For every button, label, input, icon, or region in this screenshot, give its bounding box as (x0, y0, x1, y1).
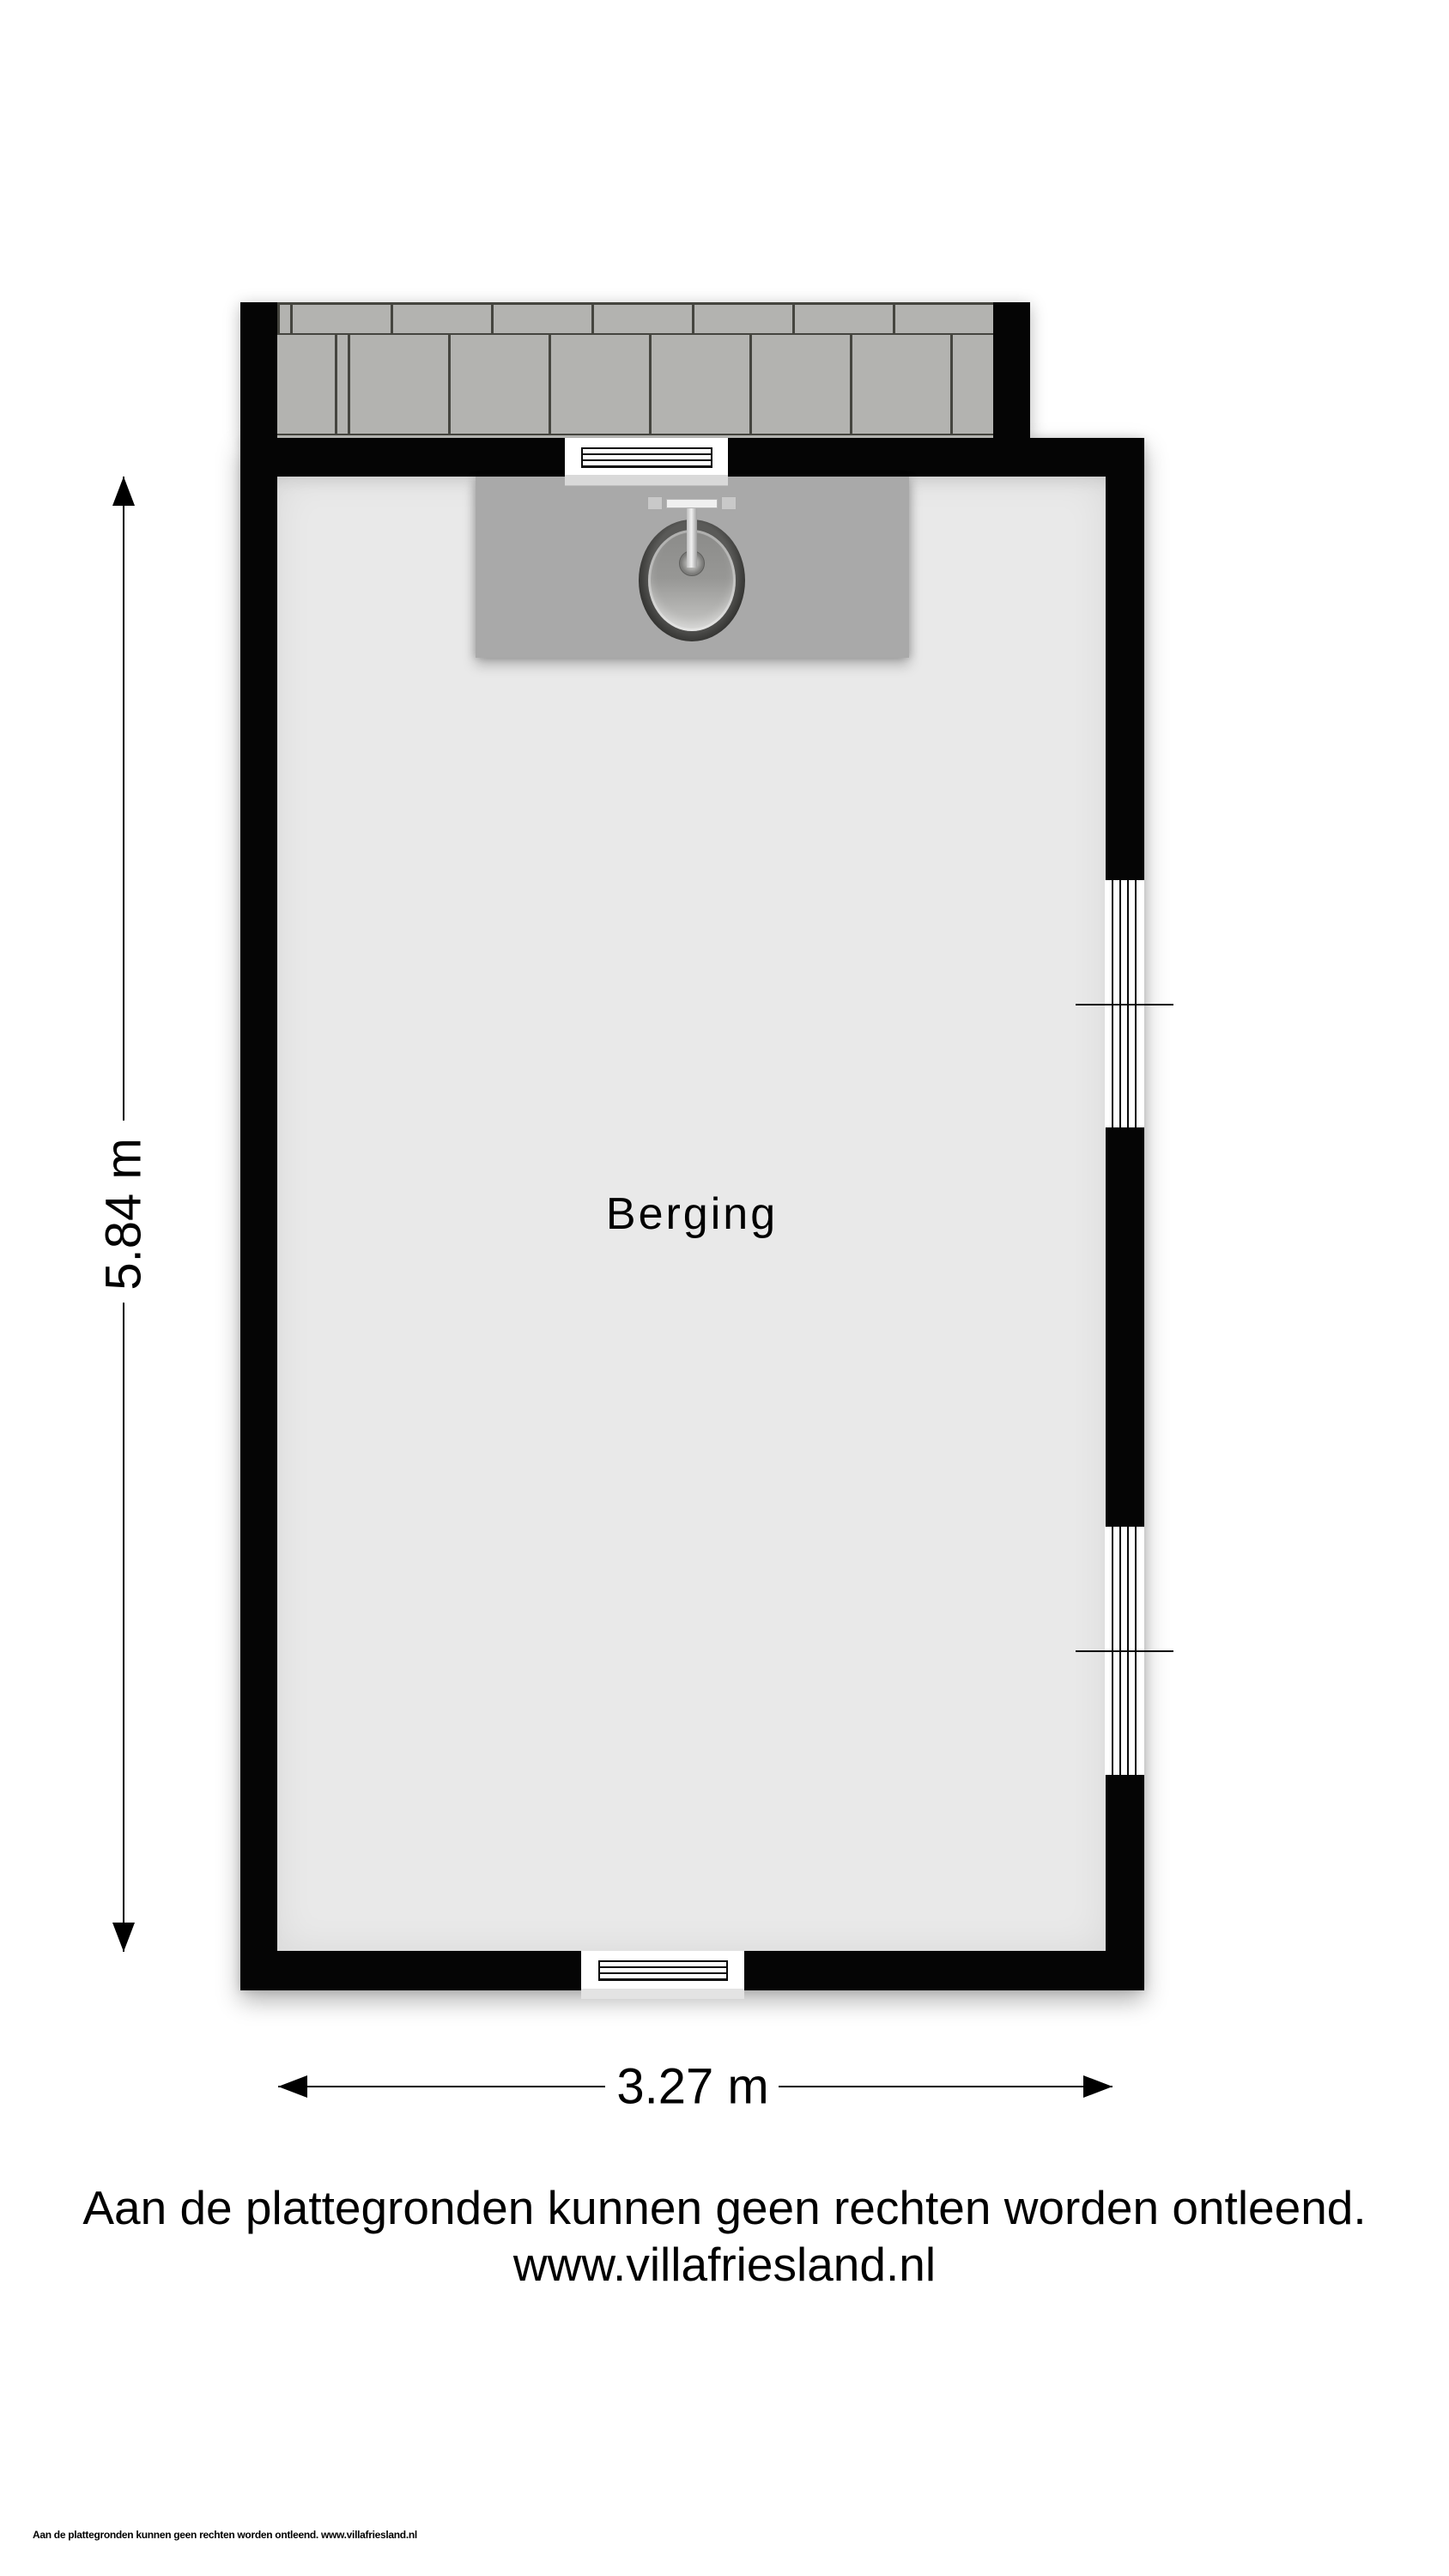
footer-text: Aan de plattegronden kunnen geen rechten… (33, 2529, 417, 2541)
window-center-tick (1076, 1650, 1173, 1652)
dimension-width-label: 3.27 m (616, 2058, 768, 2116)
faucet-handle-icon (647, 496, 663, 510)
window-top-glazing-icon (581, 447, 712, 468)
paved-terrace (277, 302, 993, 438)
window-bottom-sill (581, 1989, 744, 1999)
arrow-right-icon (1083, 2075, 1113, 2098)
window-center-tick (1076, 1004, 1173, 1005)
arrow-up-icon (112, 477, 135, 506)
tile-row (277, 302, 993, 333)
faucet-crossbar-icon (666, 499, 718, 508)
wall-terrace-right (993, 302, 1030, 440)
dimension-height-label: 5.84 m (95, 1138, 153, 1290)
wall-left (240, 302, 277, 1990)
arrow-left-icon (278, 2075, 307, 2098)
dimension-line-horizontal (278, 2086, 605, 2087)
window-bottom-glazing-icon (598, 1960, 728, 1981)
disclaimer-line1: Aan de plattegronden kunnen geen rechten… (0, 2179, 1449, 2236)
disclaimer: Aan de plattegronden kunnen geen rechten… (0, 2179, 1449, 2293)
dimension-line-vertical (123, 1303, 124, 1952)
disclaimer-line2: www.villafriesland.nl (0, 2236, 1449, 2293)
room-label: Berging (606, 1188, 778, 1240)
tile-row (277, 333, 993, 434)
dimension-line-horizontal (779, 2086, 1113, 2087)
faucet-handle-icon (721, 496, 737, 510)
arrow-down-icon (112, 1923, 135, 1952)
dimension-line-vertical (123, 477, 124, 1121)
window-top-sill (565, 475, 728, 486)
faucet-icon (687, 501, 697, 568)
